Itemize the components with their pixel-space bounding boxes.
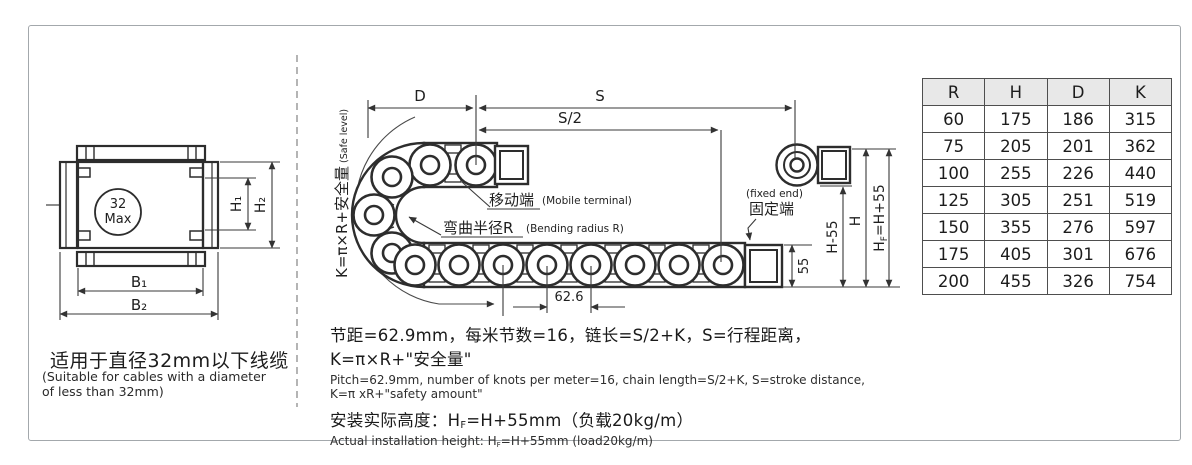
col-header-r: R <box>923 79 985 106</box>
table-row: 60175 186315 <box>923 106 1172 133</box>
note-height-en: Actual installation height: HF=H+55mm (l… <box>330 434 890 449</box>
dim-h2-label: H₂ <box>253 197 269 213</box>
dim-b2-label: B₂ <box>131 296 147 314</box>
dimension-table: R H D K 60175 186315 75205 201362 100255… <box>922 78 1172 295</box>
dim-s-label: S <box>595 87 605 105</box>
note-pitch-en: Pitch=62.9mm, number of knots per meter=… <box>330 373 890 401</box>
fixed-end-label-zh: 固定端 <box>749 200 794 218</box>
mobile-terminal-label-en: (Mobile terminal) <box>542 195 632 207</box>
table-row: 200455 326754 <box>923 268 1172 295</box>
left-caption-en: (Suitable for cables with a diameter of … <box>42 369 266 399</box>
table-row: 100255 226440 <box>923 160 1172 187</box>
fixed-end-label-en: (fixed end) <box>746 188 803 200</box>
spec-notes: 节距=62.9mm，每米节数=16，链长=S/2+K，S=行程距离，K=π×R+… <box>330 322 890 455</box>
elevated-end-link <box>777 145 851 186</box>
table-row: 175405 301676 <box>923 241 1172 268</box>
mobile-terminal-bracket <box>495 146 528 184</box>
col-header-h: H <box>985 79 1047 106</box>
table-row: 150355 276597 <box>923 214 1172 241</box>
table-header-row: R H D K <box>923 79 1172 106</box>
note-pitch-zh: 节距=62.9mm，每米节数=16，链长=S/2+K，S=行程距离，K=π×R+… <box>330 322 890 370</box>
cable-diameter-max: Max <box>105 212 132 227</box>
dim-d-label: D <box>414 87 426 105</box>
bend-radius-label-zh: 弯曲半径R <box>443 219 513 237</box>
dim-hf-label: HF=H+55 <box>872 184 890 252</box>
table-row: 125305 251519 <box>923 187 1172 214</box>
bend-radius-label-en: (Bending radius R) <box>526 223 624 235</box>
datasheet-page: 32 Max H₁ H₂ B₁ B₂ <box>0 0 1192 465</box>
dim-55-label: 55 <box>797 258 812 275</box>
note-height-zh: 安装实际高度：HF=H+55mm（负载20kg/m） <box>330 407 890 431</box>
dim-h55-label: H-55 <box>825 220 841 253</box>
safe-level-label: K=π×R+安全量 (Safe level) <box>333 109 351 278</box>
col-header-k: K <box>1109 79 1171 106</box>
dim-h-label: H <box>848 216 864 227</box>
table-row: 75205 201362 <box>923 133 1172 160</box>
mobile-terminal-label-zh: 移动端 <box>489 191 534 209</box>
dim-b1-label: B₁ <box>131 273 147 291</box>
col-header-d: D <box>1047 79 1109 106</box>
dim-h1-label: H₁ <box>229 196 245 212</box>
cable-diameter-value: 32 <box>110 197 127 212</box>
cross-section-dimensions <box>60 162 280 320</box>
fixed-end-bracket <box>745 245 782 287</box>
cross-section-diagram <box>46 146 218 266</box>
dim-s2-label: S/2 <box>558 109 582 127</box>
dim-pitch-label: 62.6 <box>555 290 584 305</box>
chain-rollers <box>354 145 744 286</box>
